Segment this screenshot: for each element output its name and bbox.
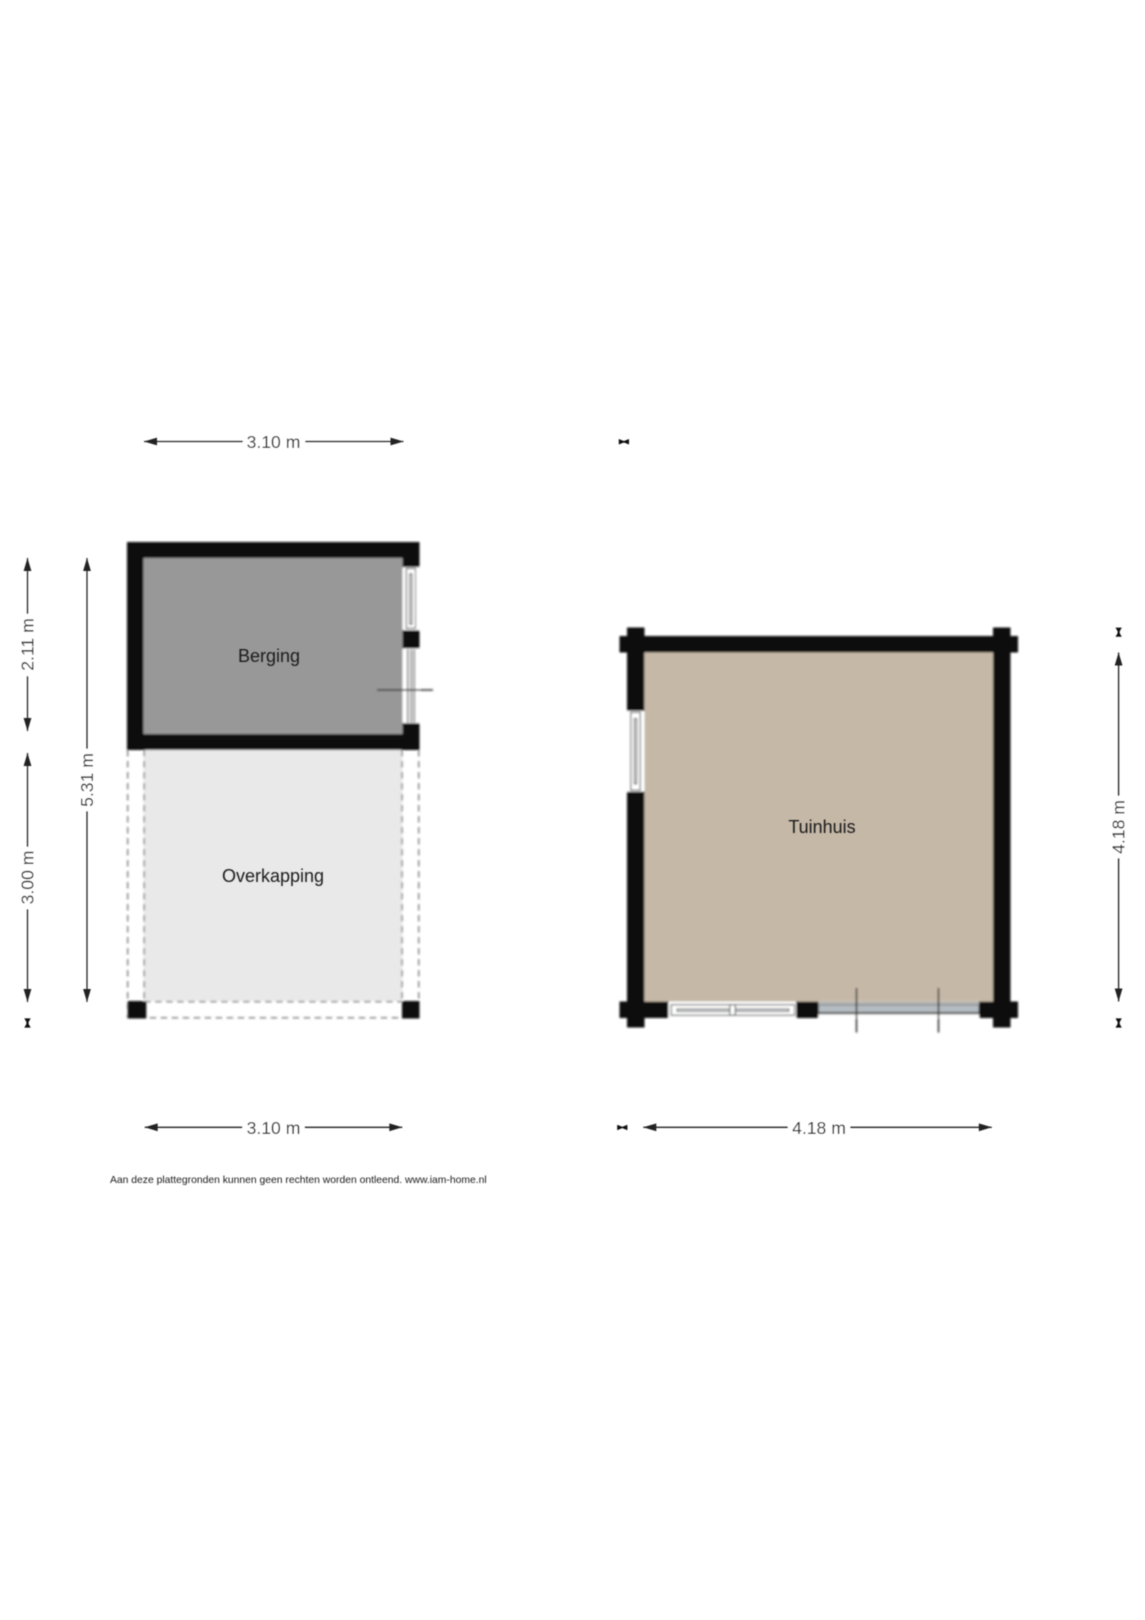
svg-text:3.10 m: 3.10 m	[247, 432, 301, 452]
svg-text:4.18 m: 4.18 m	[1109, 800, 1129, 854]
svg-text:Overkapping: Overkapping	[222, 866, 324, 886]
svg-text:4.18 m: 4.18 m	[792, 1118, 846, 1138]
svg-text:Berging: Berging	[238, 646, 300, 666]
svg-text:Tuinhuis: Tuinhuis	[788, 817, 855, 837]
svg-text:Aan deze plattegronden kunnen: Aan deze plattegronden kunnen geen recht…	[110, 1175, 487, 1186]
svg-text:3.10 m: 3.10 m	[247, 1118, 301, 1138]
svg-text:3.00 m: 3.00 m	[18, 851, 38, 905]
svg-text:2.11 m: 2.11 m	[18, 618, 38, 670]
svg-text:5.31 m: 5.31 m	[77, 753, 97, 807]
